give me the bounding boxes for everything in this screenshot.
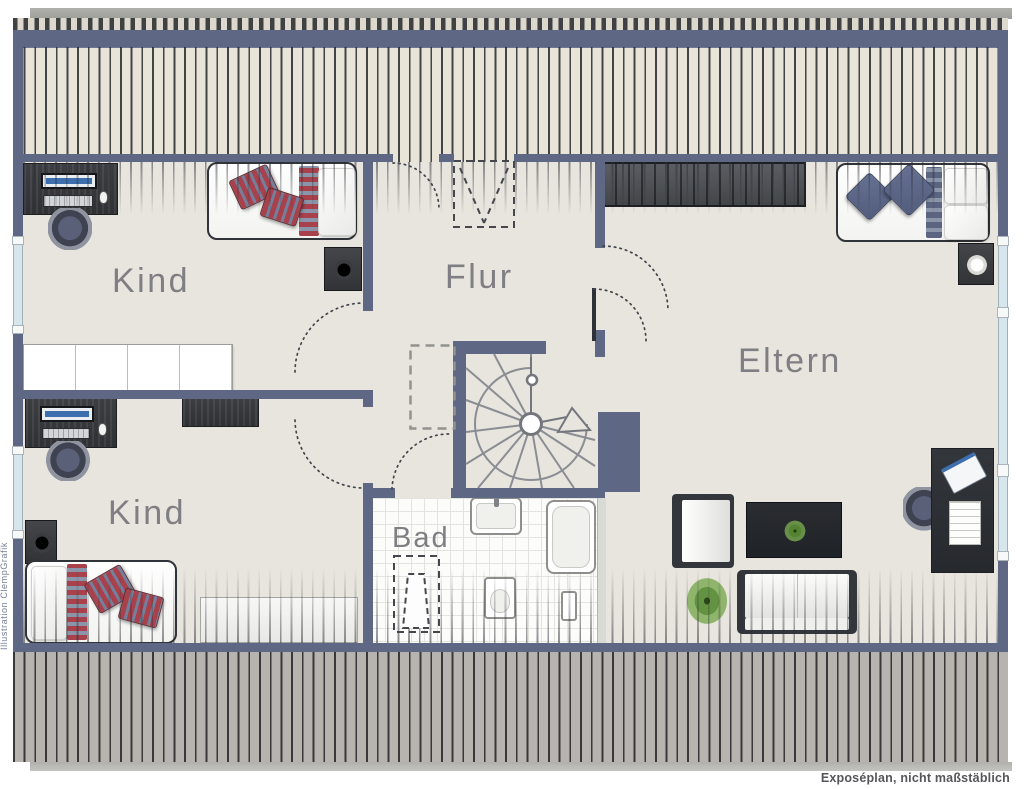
wall-stair-top [453,341,546,354]
wall-stair-left [453,341,466,498]
wall-shelf [182,396,259,427]
wall-kind-flur-lower [363,399,373,407]
roof-slope-stripes-bottom [23,568,998,643]
bedside-lamp [967,255,987,275]
wall-bottom-outer [13,643,1008,652]
rafter-ticks [13,18,1008,30]
window-frame [997,236,1009,246]
wall-rooms-north [23,154,363,162]
shelf-unit [23,344,233,391]
wall-bad-north [363,488,395,498]
window-frame [12,236,24,245]
window-frame [12,530,24,539]
window-frame [12,325,24,334]
wall-flur-eltern [595,154,605,248]
table-plant [780,516,810,546]
papers [949,501,981,545]
wall-between-kids [13,390,373,399]
eaves-shadow [30,762,1012,771]
floor-plan: Kind Flur Eltern Kind Bad Illustration C… [0,0,1024,789]
chimney-block [598,412,640,492]
window [13,238,23,332]
bathtub [546,500,596,574]
wall-flur-eltern [595,330,605,357]
window-frame [997,551,1009,561]
desk-keyboard [42,428,90,439]
desk-monitor [40,406,94,422]
wall-rooms-north [439,154,454,162]
window [13,448,23,538]
desk-mouse [98,423,107,436]
roof-slope-stripes-top [23,162,998,215]
footer-note: Exposéplan, nicht maßstäblich [821,771,1010,785]
bedside-lamp [334,260,354,280]
wall-kind-flur [363,154,373,311]
room-label-kind-top: Kind [112,262,190,301]
wall-bad-north [451,488,605,498]
door-leaf [592,288,596,341]
desk [931,448,994,573]
wall-bad-eltern [597,498,606,643]
room-label-eltern: Eltern [738,342,842,381]
nightstand [958,243,994,285]
window-frame [12,446,24,455]
room-label-kind-bottom: Kind [108,494,186,533]
window [998,238,1008,560]
room-label-flur: Flur [445,258,514,297]
wall-top-band [13,30,1008,47]
sink [470,497,522,535]
nightstand [25,520,57,564]
window-frame [997,307,1009,318]
bathtub-basin [552,506,590,568]
roof-hatch-bottom [13,652,1008,762]
armchair-seat [682,500,730,562]
nightstand [324,247,362,291]
armchair [672,494,734,568]
window-frame [997,464,1009,477]
sink-faucet [494,498,499,507]
laptop [941,452,988,495]
wall-rooms-north [514,154,998,162]
bedside-lamp [32,533,52,553]
coffee-table [746,502,842,558]
office-chair [46,441,90,481]
wall-kind-bad [363,483,373,643]
room-label-bad: Bad [392,522,450,555]
wall-left-outer [13,30,23,652]
watermark: Illustration ClempGrafik [0,542,9,650]
wall-rooms-north [373,154,393,162]
